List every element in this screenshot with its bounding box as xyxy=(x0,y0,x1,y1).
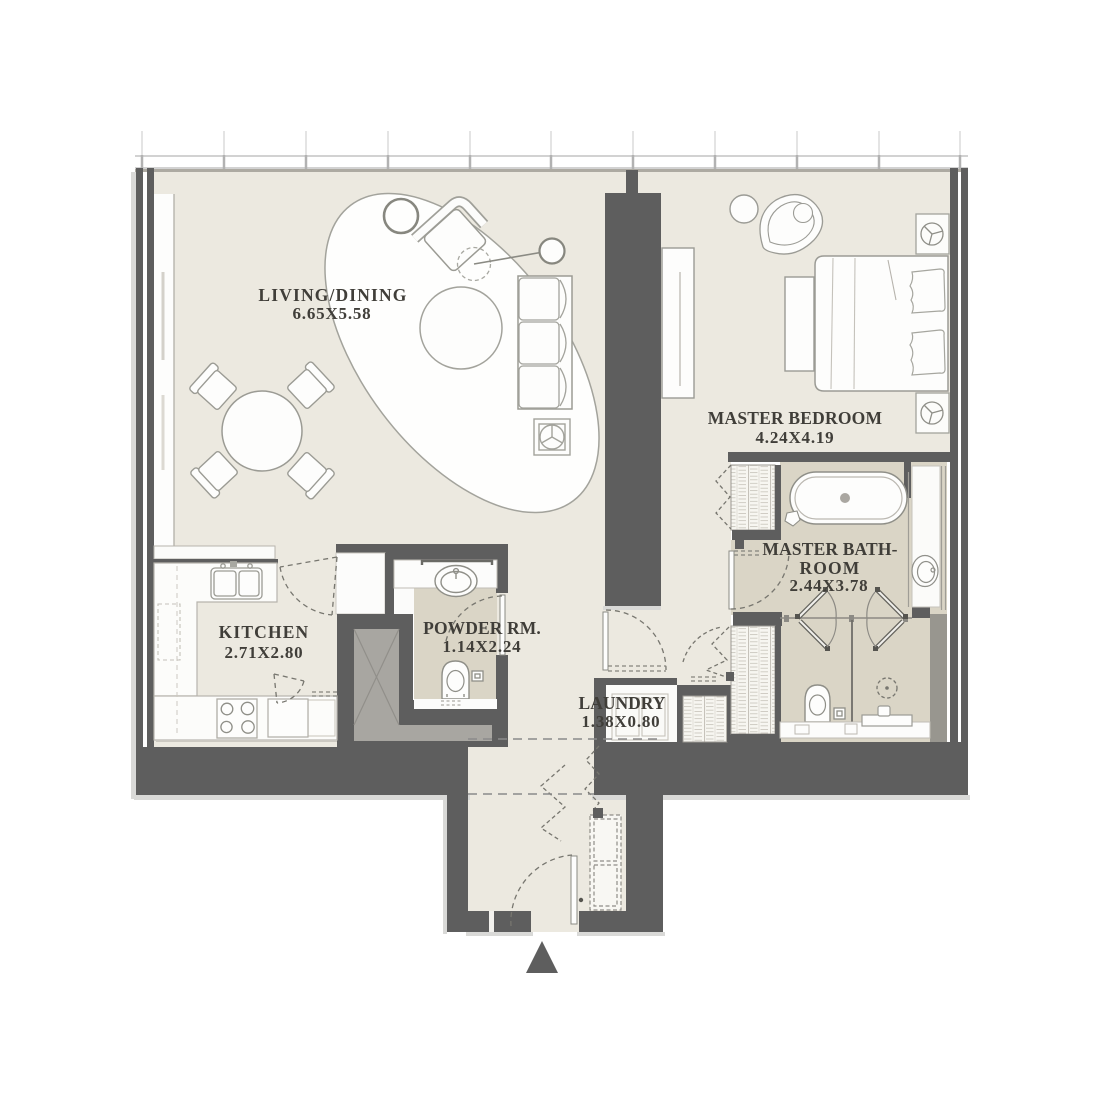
svg-text:1.14X2.24: 1.14X2.24 xyxy=(443,637,522,656)
svg-text:KITCHEN: KITCHEN xyxy=(219,622,310,642)
svg-text:POWDER RM.: POWDER RM. xyxy=(423,618,541,638)
svg-text:LIVING/DINING: LIVING/DINING xyxy=(258,285,407,305)
svg-text:MASTER BATH-: MASTER BATH- xyxy=(762,539,897,559)
svg-text:4.24X4.19: 4.24X4.19 xyxy=(756,428,835,447)
svg-text:1.38X0.80: 1.38X0.80 xyxy=(582,712,661,731)
svg-text:ROOM: ROOM xyxy=(800,558,861,578)
svg-text:LAUNDRY: LAUNDRY xyxy=(579,693,666,713)
svg-text:6.65X5.58: 6.65X5.58 xyxy=(293,304,372,323)
svg-text:MASTER BEDROOM: MASTER BEDROOM xyxy=(708,408,883,428)
svg-text:2.44X3.78: 2.44X3.78 xyxy=(790,576,869,595)
svg-text:2.71X2.80: 2.71X2.80 xyxy=(225,643,304,662)
